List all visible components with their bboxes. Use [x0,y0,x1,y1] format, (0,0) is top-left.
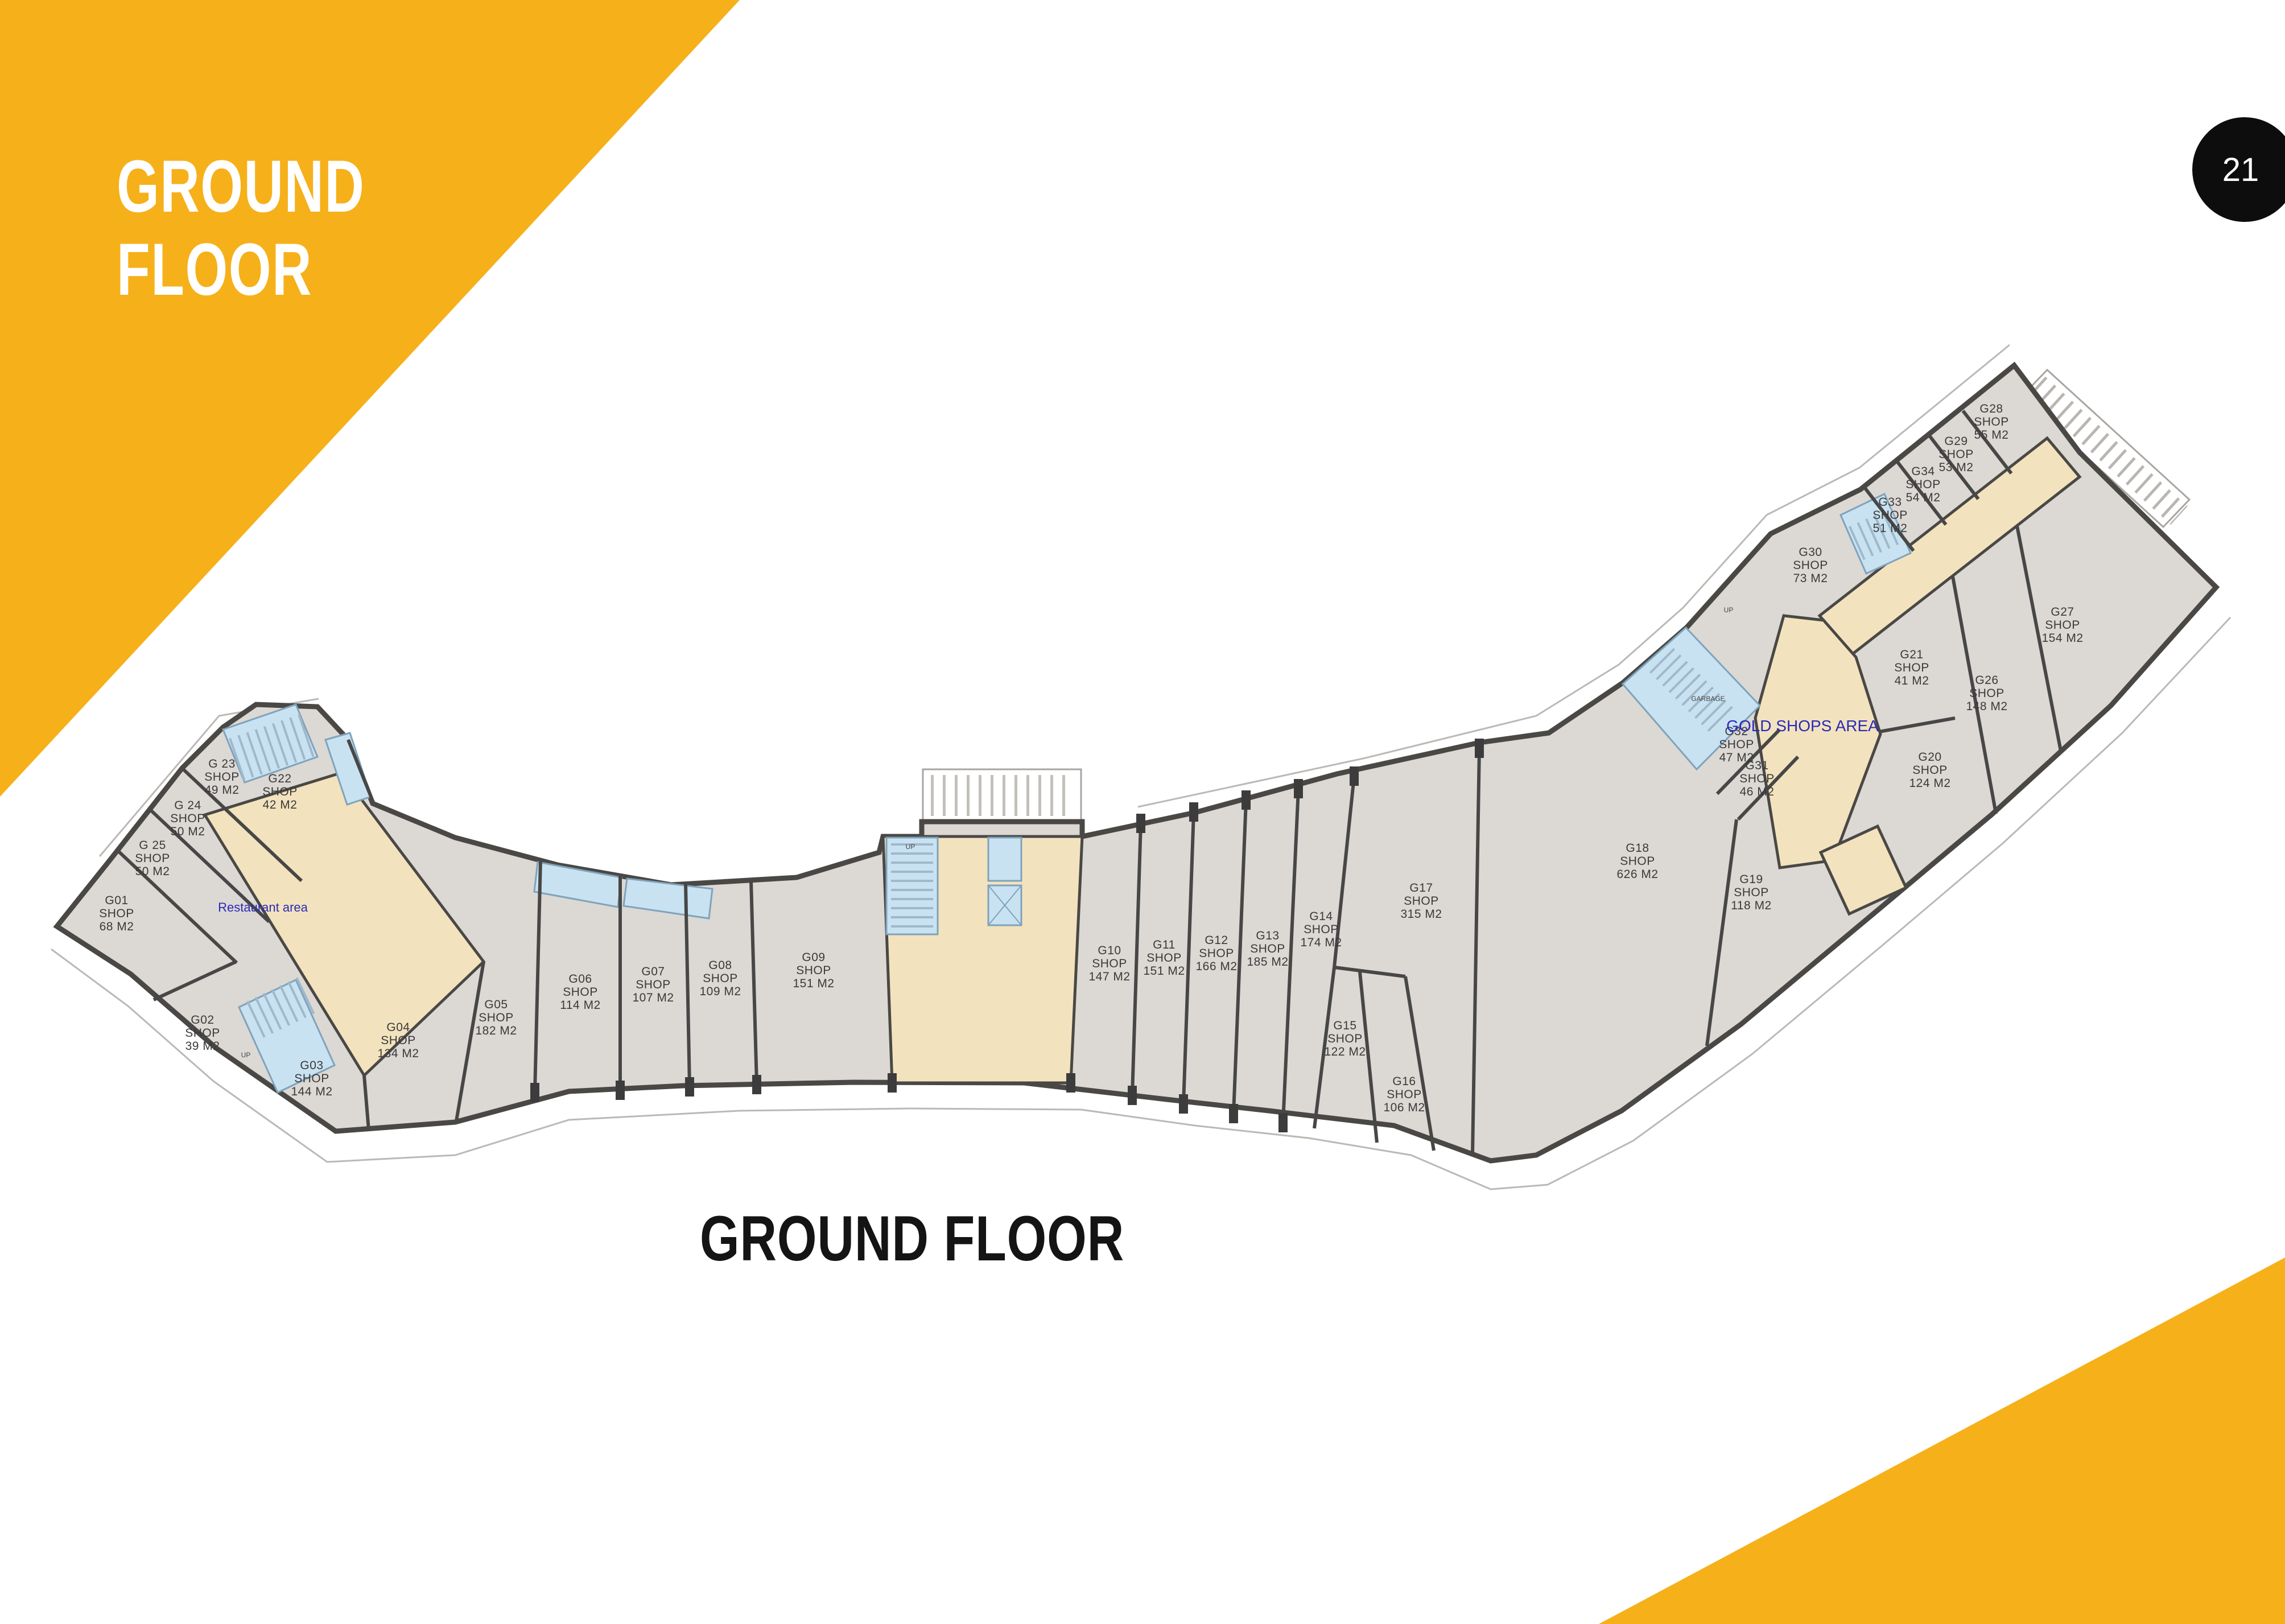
zone-label-restaurant-area: Restaurant area [218,900,308,914]
floor-plan-canvas: G 23SHOP49 M2G 24SHOP50 M2G 25SHOP50 M2G… [0,0,2285,1624]
small-label-up: UP [1724,606,1734,614]
stair-core-lobby [886,838,938,934]
small-label-garbage: GARBAGE [1691,695,1725,703]
small-label-up: UP [906,843,915,851]
corner-triangle-top-left [0,0,740,797]
room-label-G25: G 25SHOP50 M2 [135,839,170,878]
page-number: 21 [2222,151,2259,188]
page-title-line1: GROUND [117,145,365,228]
small-label-up: UP [241,1051,251,1059]
bottom-title: GROUND FLOOR [700,1203,1124,1275]
room-label-G24: G 24SHOP50 M2 [170,799,205,838]
room-label-G23: G 23SHOP49 M2 [204,757,240,797]
elevator-lobby-1 [988,838,1021,881]
page-title-line2: FLOOR [117,228,312,311]
entrance-vestibule-center [923,769,1081,821]
zone-label-gold-shops-area: GOLD SHOPS AREA [1726,717,1879,735]
corner-triangle-bottom-right [1599,1258,2285,1624]
page: G 23SHOP49 M2G 24SHOP50 M2G 25SHOP50 M2G… [0,0,2285,1624]
